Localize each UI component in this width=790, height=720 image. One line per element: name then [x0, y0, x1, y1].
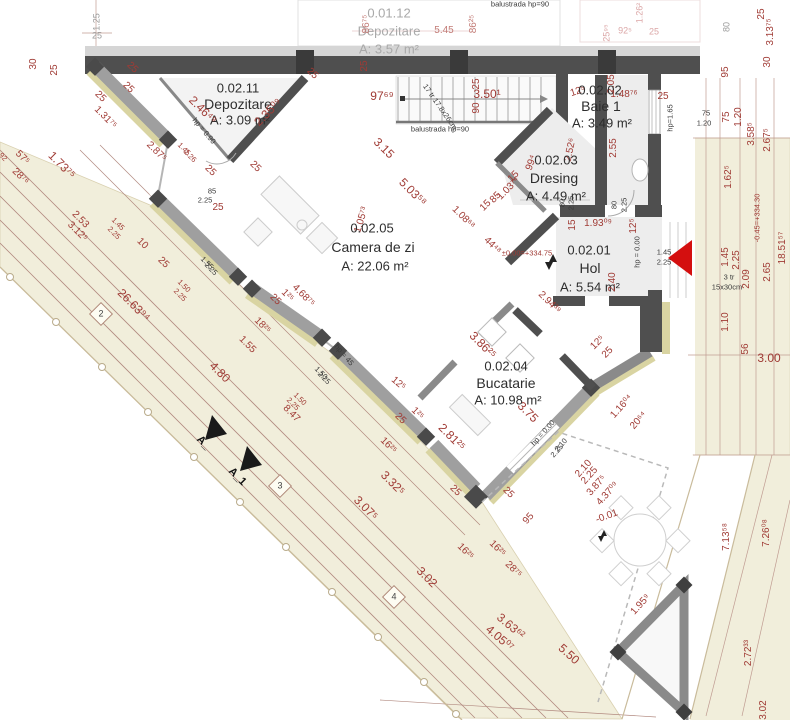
- floor-plan-svg: [0, 0, 790, 720]
- top-wall: [85, 46, 700, 74]
- retaining-wall-triangle: [610, 577, 693, 720]
- window: [649, 90, 660, 134]
- table-icon: [297, 220, 307, 230]
- terrace-table-icon: [614, 514, 666, 566]
- toilet-icon: [632, 159, 648, 181]
- upper-floor-ghost: [298, 0, 700, 46]
- floor-plan-page: Floor plan - level 0.02: [0, 0, 790, 720]
